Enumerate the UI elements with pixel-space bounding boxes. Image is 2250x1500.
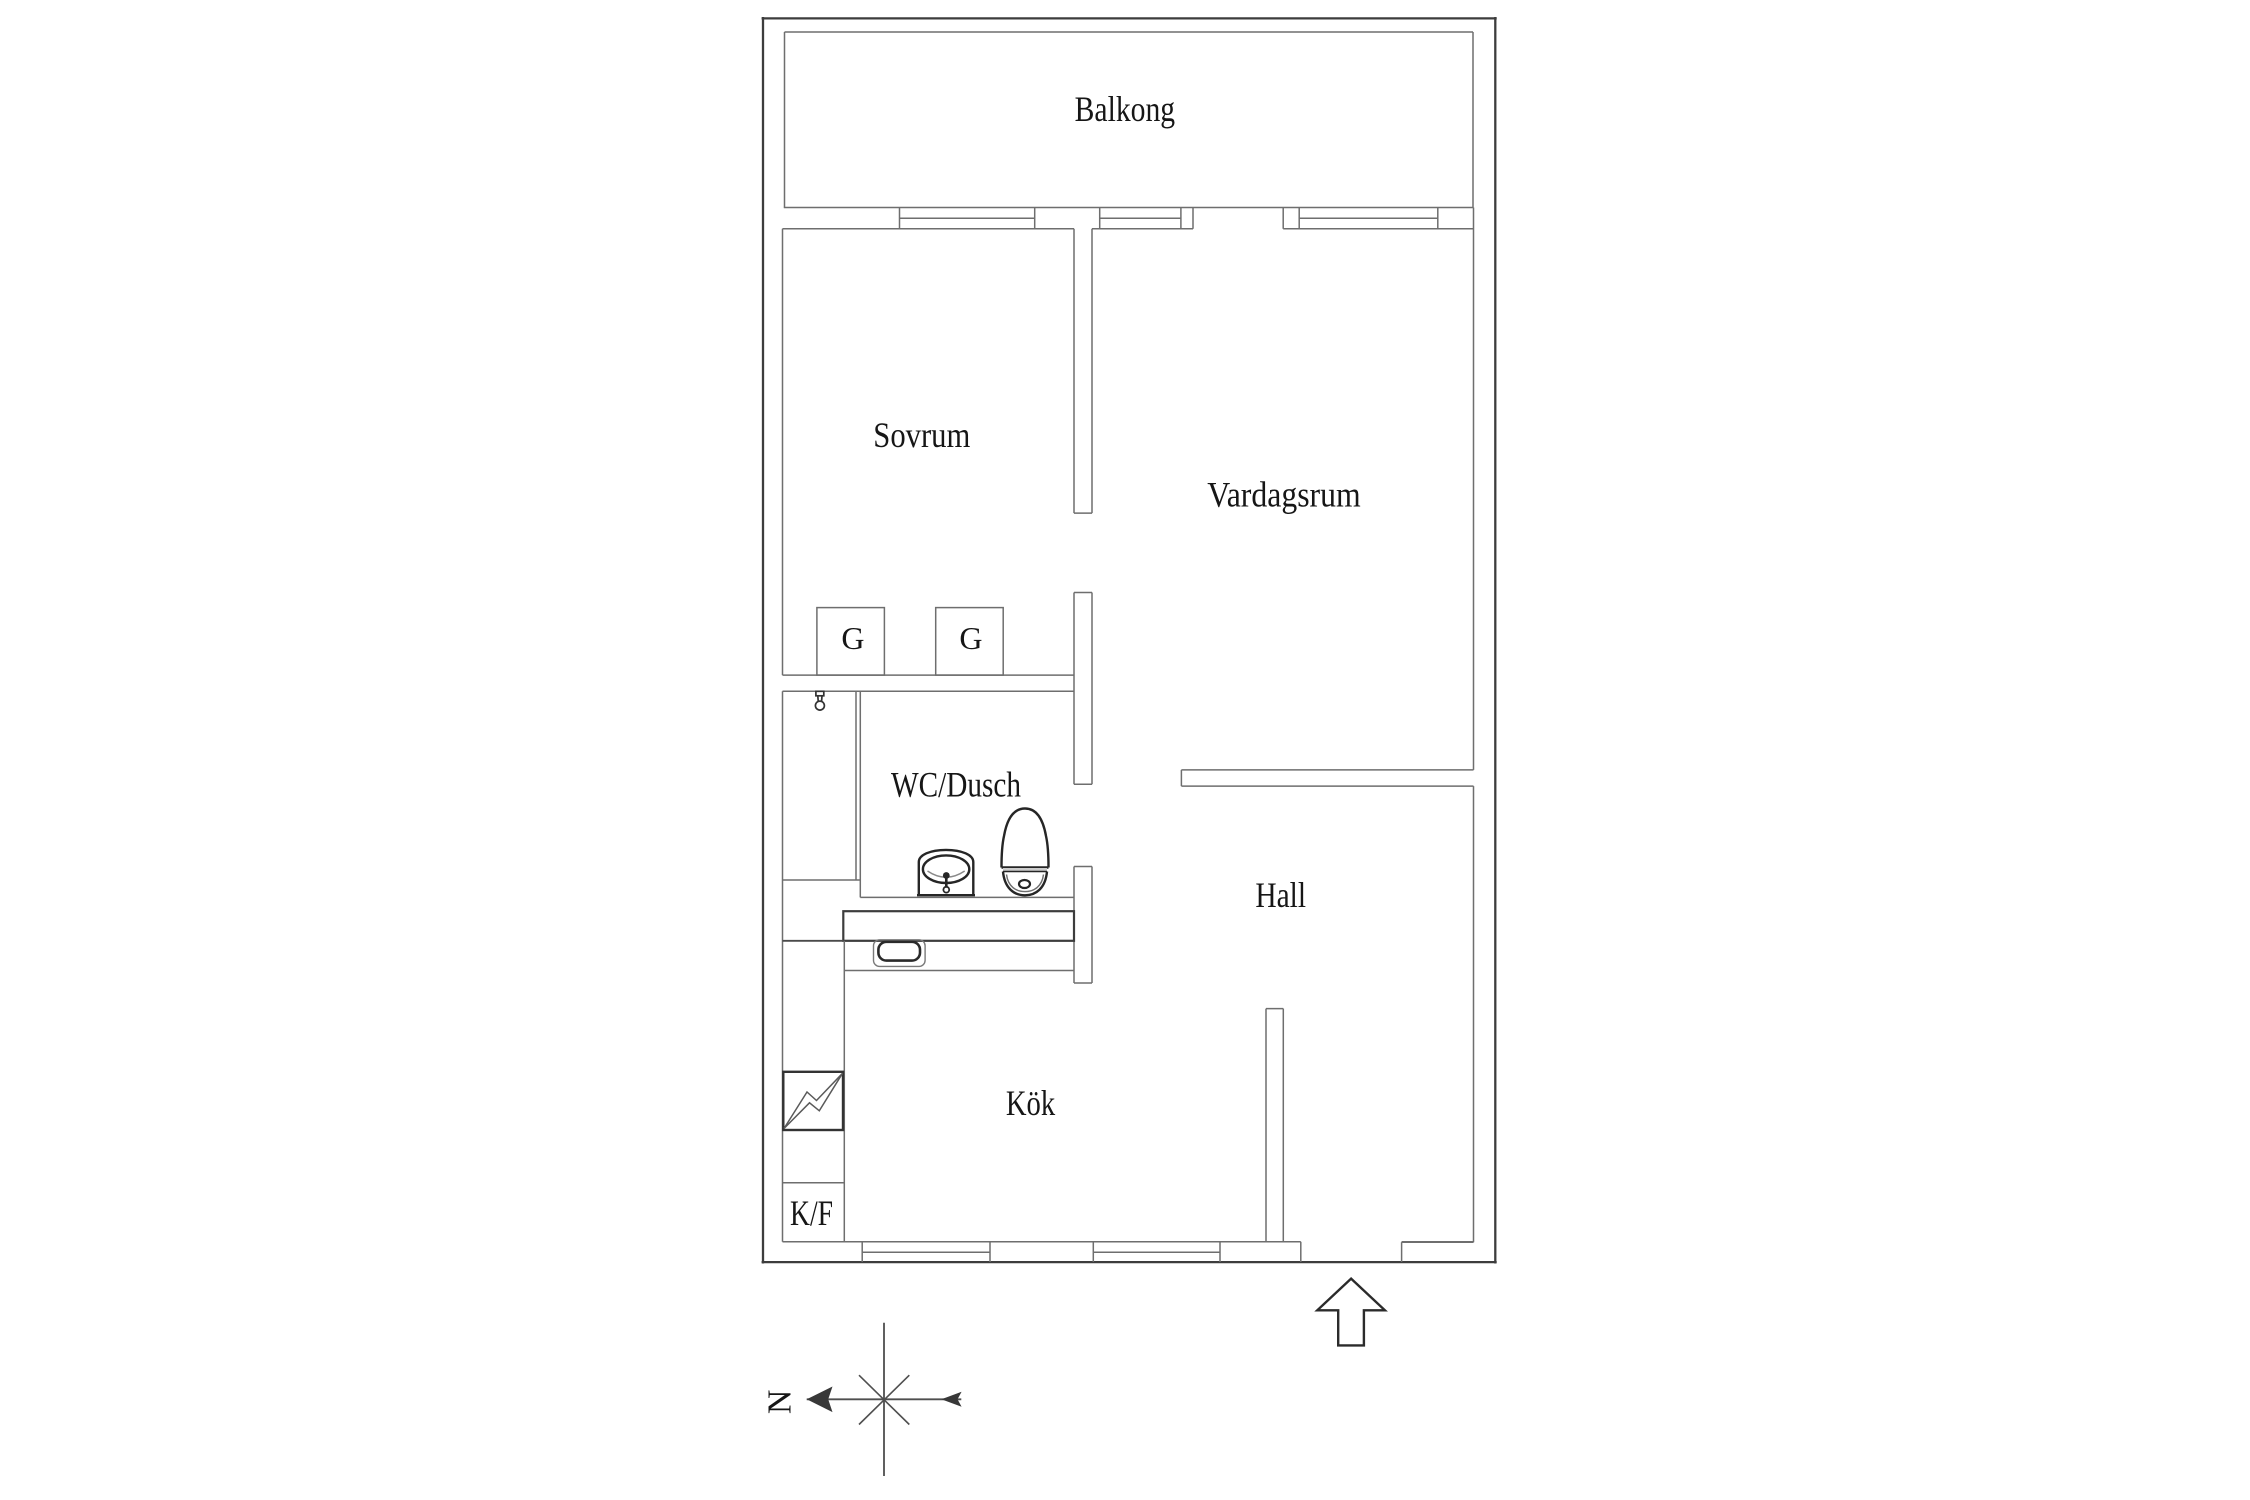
svg-text:G: G [841, 620, 864, 656]
svg-text:Kök: Kök [1006, 1083, 1055, 1123]
svg-text:N: N [762, 1390, 799, 1415]
svg-text:Hall: Hall [1255, 875, 1306, 915]
svg-text:Balkong: Balkong [1075, 89, 1176, 129]
svg-text:Sovrum: Sovrum [873, 415, 970, 455]
svg-text:WC/Dusch: WC/Dusch [891, 765, 1021, 805]
svg-text:K/F: K/F [790, 1193, 833, 1233]
svg-text:Vardagsrum: Vardagsrum [1207, 474, 1360, 514]
svg-text:G: G [959, 620, 982, 656]
